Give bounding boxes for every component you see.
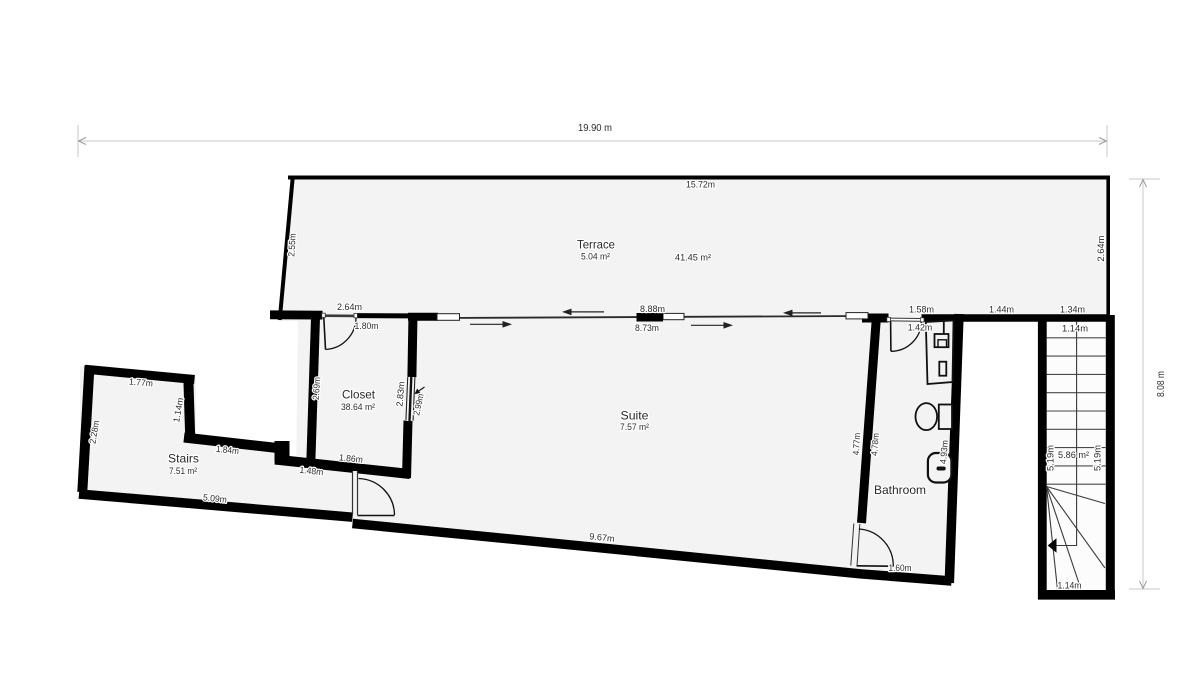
svg-text:5.19m: 5.19m [1046, 445, 1056, 471]
svg-text:2.64m: 2.64m [337, 302, 362, 312]
svg-text:15.72m: 15.72m [686, 180, 715, 190]
svg-text:Closet: Closet [342, 388, 376, 402]
svg-text:1.14m: 1.14m [1062, 324, 1088, 334]
svg-text:1.77m: 1.77m [129, 376, 154, 388]
svg-text:1.44m: 1.44m [989, 305, 1014, 315]
svg-text:1.60m: 1.60m [889, 563, 912, 573]
svg-text:7.51 m²: 7.51 m² [169, 466, 197, 477]
svg-text:19.90 m: 19.90 m [578, 123, 612, 134]
svg-text:2.64m: 2.64m [1096, 236, 1106, 262]
svg-text:5.86 m²: 5.86 m² [1058, 450, 1089, 461]
svg-text:1.58m: 1.58m [909, 305, 934, 315]
svg-text:4.78m: 4.78m [869, 433, 881, 457]
svg-text:4.77m: 4.77m [851, 432, 863, 455]
svg-text:2.55m: 2.55m [286, 233, 297, 257]
svg-text:8.88m: 8.88m [640, 304, 665, 314]
svg-text:41.45 m²: 41.45 m² [675, 253, 711, 264]
svg-text:2.69m: 2.69m [311, 377, 323, 401]
svg-text:Bathroom: Bathroom [874, 483, 926, 497]
svg-text:4.93m: 4.93m [938, 440, 950, 465]
svg-text:7.57 m²: 7.57 m² [620, 422, 649, 433]
svg-text:1.80m: 1.80m [355, 321, 379, 331]
svg-text:38.64 m²: 38.64 m² [341, 402, 375, 413]
svg-text:Stairs: Stairs [168, 452, 199, 466]
svg-text:8.73m: 8.73m [635, 323, 659, 333]
svg-text:5.04 m²: 5.04 m² [581, 252, 610, 263]
svg-text:8.08 m: 8.08 m [1156, 371, 1167, 397]
svg-text:1.34m: 1.34m [1060, 305, 1085, 315]
svg-text:1.42m: 1.42m [908, 323, 933, 333]
svg-text:Suite: Suite [621, 409, 649, 423]
svg-text:Terrace: Terrace [577, 238, 615, 252]
svg-text:5.19m: 5.19m [1093, 445, 1103, 471]
svg-text:1.14m: 1.14m [1058, 581, 1082, 591]
